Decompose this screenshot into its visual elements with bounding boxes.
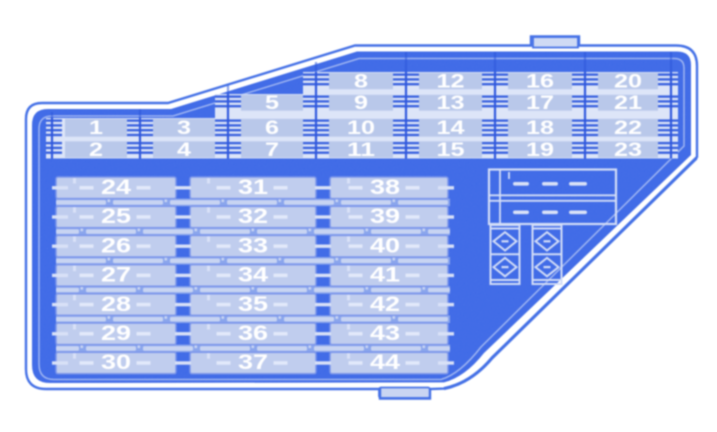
- svg-text:23: 23: [614, 140, 642, 161]
- svg-text:39: 39: [370, 204, 400, 228]
- svg-text:31: 31: [238, 175, 268, 199]
- svg-text:36: 36: [238, 321, 268, 345]
- svg-text:19: 19: [526, 140, 554, 161]
- svg-text:37: 37: [238, 350, 268, 374]
- svg-text:17: 17: [526, 93, 554, 114]
- svg-text:34: 34: [238, 263, 268, 287]
- svg-text:30: 30: [101, 350, 131, 374]
- svg-text:3: 3: [177, 118, 191, 139]
- svg-text:12: 12: [437, 72, 465, 93]
- svg-text:6: 6: [265, 118, 279, 139]
- svg-text:10: 10: [347, 118, 375, 139]
- svg-text:20: 20: [614, 72, 642, 93]
- svg-text:8: 8: [354, 72, 368, 93]
- svg-text:43: 43: [370, 321, 400, 345]
- svg-text:33: 33: [238, 233, 268, 257]
- svg-text:16: 16: [526, 72, 554, 93]
- svg-text:26: 26: [101, 233, 131, 257]
- svg-text:11: 11: [347, 140, 376, 161]
- svg-text:40: 40: [370, 233, 400, 257]
- svg-text:14: 14: [437, 118, 466, 139]
- svg-text:38: 38: [370, 175, 400, 199]
- svg-text:24: 24: [101, 175, 131, 199]
- svg-text:2: 2: [89, 140, 103, 161]
- svg-text:7: 7: [265, 140, 279, 161]
- svg-text:44: 44: [370, 350, 400, 374]
- svg-text:28: 28: [101, 292, 131, 316]
- svg-text:27: 27: [101, 263, 131, 287]
- svg-text:32: 32: [238, 204, 268, 228]
- svg-text:9: 9: [354, 93, 368, 114]
- svg-text:41: 41: [370, 263, 400, 287]
- svg-text:5: 5: [265, 93, 280, 114]
- svg-text:25: 25: [101, 204, 131, 228]
- svg-text:13: 13: [437, 93, 465, 114]
- svg-text:4: 4: [177, 140, 192, 161]
- svg-text:1: 1: [89, 118, 104, 139]
- svg-text:22: 22: [614, 118, 642, 139]
- svg-text:15: 15: [437, 140, 466, 161]
- svg-text:29: 29: [101, 321, 131, 345]
- svg-text:18: 18: [526, 118, 554, 139]
- svg-text:21: 21: [614, 93, 643, 114]
- svg-text:35: 35: [238, 292, 268, 316]
- svg-text:42: 42: [370, 292, 400, 316]
